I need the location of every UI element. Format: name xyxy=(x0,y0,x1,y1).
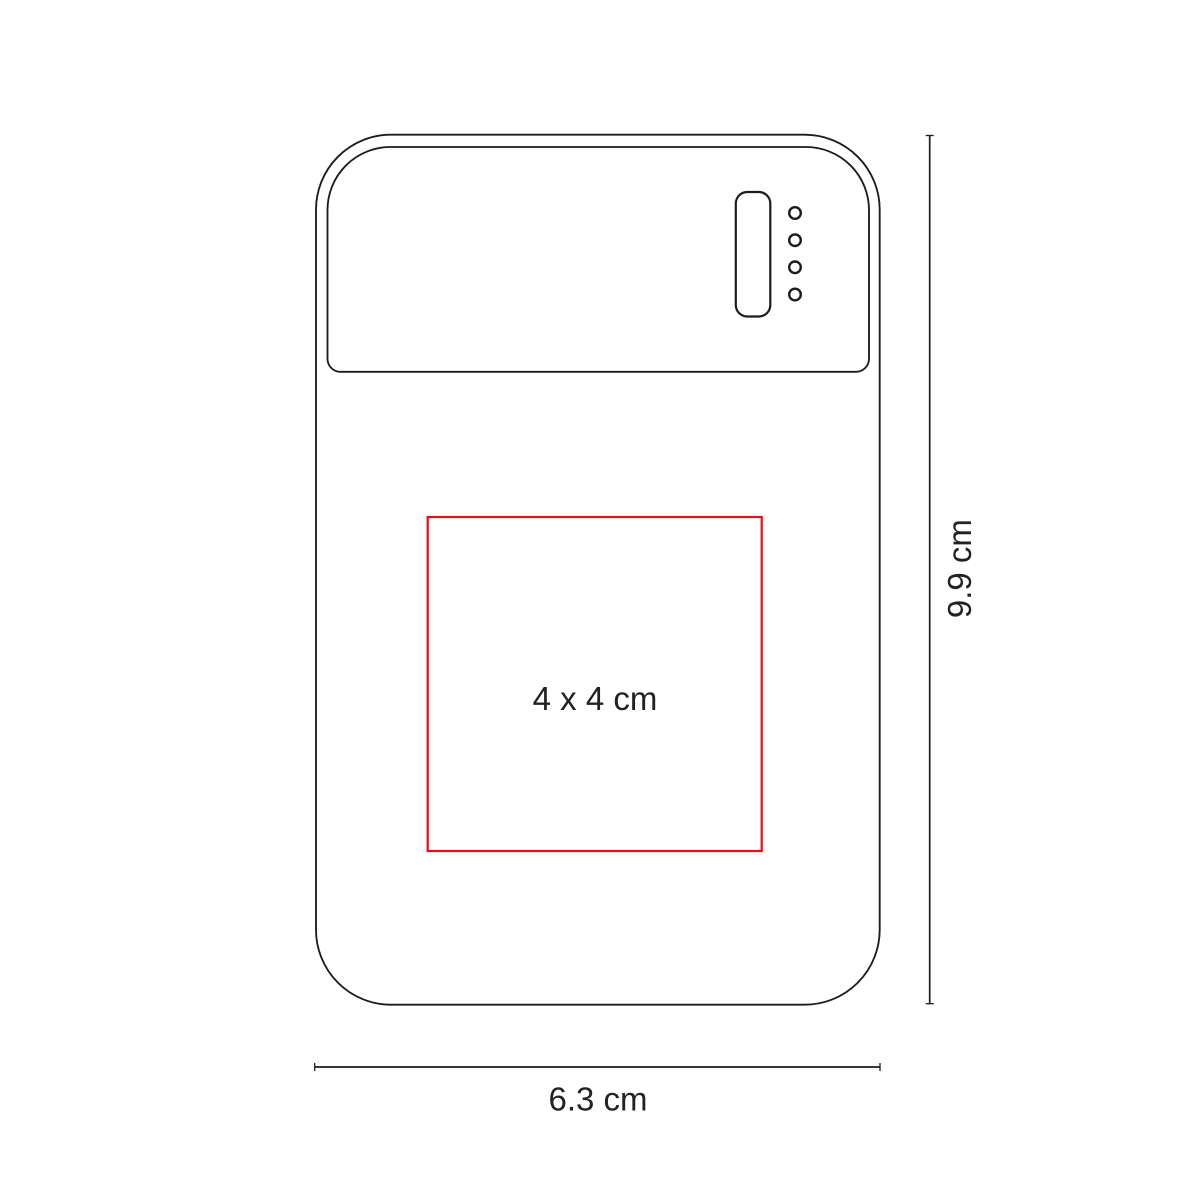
svg-text:4 x 4 cm: 4 x 4 cm xyxy=(533,680,658,717)
svg-text:6.3 cm: 6.3 cm xyxy=(548,1081,647,1118)
svg-text:9.9 cm: 9.9 cm xyxy=(941,519,978,618)
